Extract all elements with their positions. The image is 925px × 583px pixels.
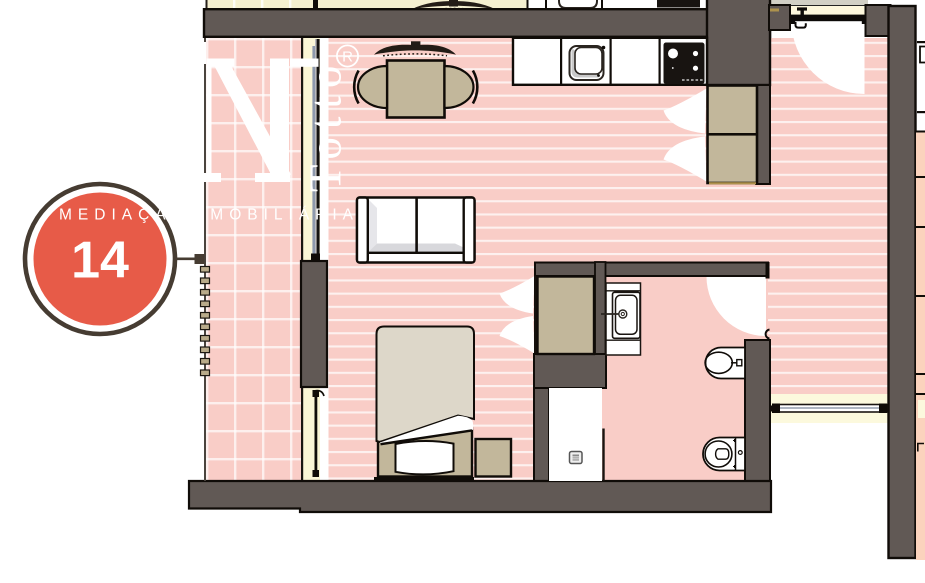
svg-text:MEDIAÇÃO IMOBILIÁRIA: MEDIAÇÃO IMOBILIÁRIA [59, 207, 359, 224]
svg-text:14: 14 [71, 232, 129, 290]
svg-text:Totto: Totto [301, 58, 351, 192]
